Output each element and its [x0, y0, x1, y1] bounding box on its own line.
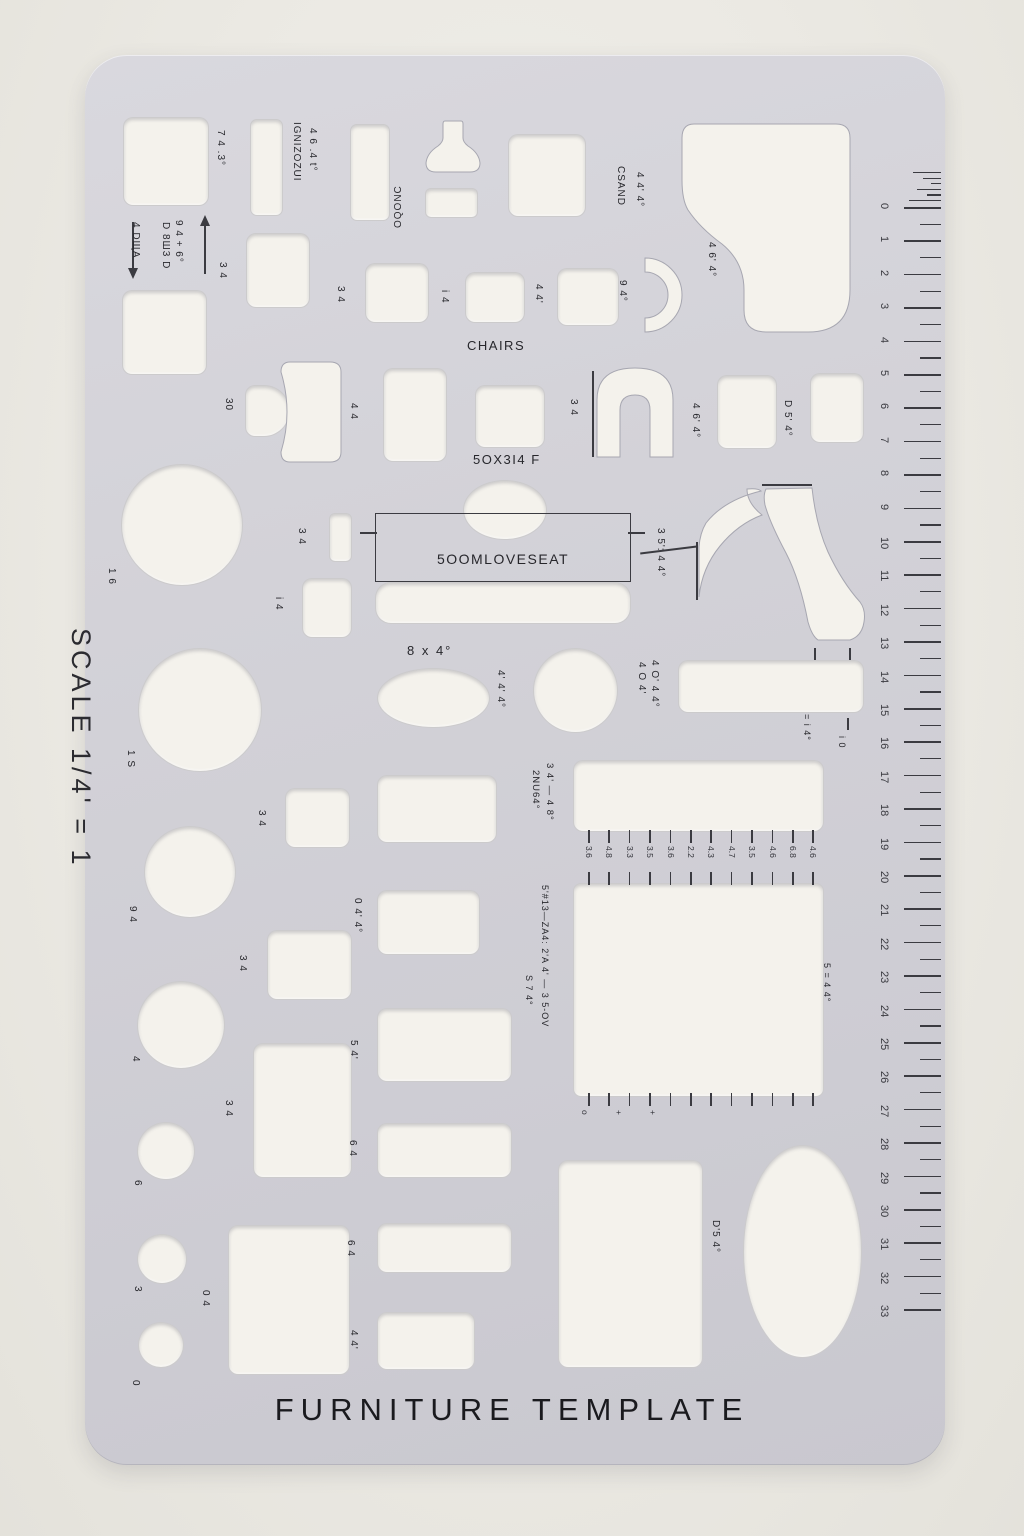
- oval-dim-label: 8 x 4°: [407, 643, 452, 658]
- ruler-major-tick: [904, 1109, 941, 1111]
- bed-tick-number: 3.3: [625, 846, 635, 858]
- cutout-round-table: [138, 648, 262, 772]
- ruler-number: 6: [878, 403, 890, 409]
- ruler-number: 5: [878, 370, 890, 376]
- up-arrow-line: [204, 226, 206, 274]
- arc-dimension-line: [762, 484, 812, 486]
- bed-tick-number: 3.6: [666, 846, 676, 858]
- bed-tick-number: o: [580, 1110, 590, 1115]
- ruler-major-tick: [904, 641, 941, 643]
- ruler-number: 26: [878, 1071, 890, 1083]
- bed-tick: [710, 830, 712, 843]
- cutout-round-table: [144, 826, 236, 918]
- cutout-small-rect: [329, 513, 352, 562]
- bed-tick-number: 4.8: [604, 846, 614, 858]
- loveseat-outline: [375, 513, 631, 582]
- ruler-minor-tick: [920, 257, 941, 258]
- dim-label: 3 5': 4 4°: [655, 528, 666, 577]
- dim-label: 3: [132, 1286, 143, 1293]
- cutout-queen-bed: [573, 760, 824, 832]
- ruler-number: 8: [878, 470, 890, 476]
- cutout-square-table: [475, 385, 545, 448]
- bed-tick: [751, 1093, 753, 1106]
- ruler-minor-tick: [920, 591, 941, 592]
- dim-label: D 5' 4°: [782, 400, 793, 437]
- ruler-major-tick: [904, 374, 941, 376]
- cutout-arc-chair: [600, 250, 700, 340]
- bed-tick: [670, 830, 672, 843]
- ruler-number: 16: [878, 737, 890, 749]
- ruler-minor-tick: [920, 1259, 941, 1260]
- dim-label: 3 4: [568, 399, 579, 416]
- ruler-number: 12: [878, 604, 890, 616]
- dim-label: = i 4°: [802, 714, 812, 741]
- ruler-cal-tick: [913, 172, 941, 173]
- ruler-major-tick: [904, 1176, 941, 1178]
- dim-label: 4 4: [348, 403, 359, 420]
- bed-tick: [670, 1093, 672, 1106]
- arrow-label: D 8Ш3 D: [160, 222, 171, 269]
- dim-label: 4 O 4': [636, 662, 647, 694]
- dim-label: 30: [223, 398, 234, 411]
- cutout-square-table: [267, 930, 352, 1000]
- bed-tick: [629, 1093, 631, 1106]
- ruler-minor-tick: [920, 825, 941, 826]
- cutout-dresser: [253, 1043, 352, 1178]
- arrow-label: 4 DЩA: [130, 222, 141, 259]
- ruler-major-tick: [904, 274, 941, 276]
- bed-tick-number: +: [614, 1110, 624, 1115]
- ruler-number: 9: [878, 504, 890, 510]
- bed-tick-number: 2.2: [686, 846, 696, 858]
- ruler-minor-tick: [920, 758, 941, 759]
- cutout-arch-chair: [590, 365, 680, 463]
- ruler-number: 32: [878, 1272, 890, 1284]
- cutout-sofa-table: [678, 660, 864, 713]
- ruler-major-tick: [904, 1075, 941, 1077]
- dim-label: 4 4' 4°: [634, 172, 645, 207]
- bed-tick: [649, 830, 651, 843]
- bed-tick-number: 6.8: [788, 846, 798, 858]
- ruler-number: 14: [878, 671, 890, 683]
- bed-tick: [772, 830, 774, 843]
- bed-tick: [812, 1093, 814, 1106]
- ruler-number: 4: [878, 337, 890, 343]
- cutout-sectional-arcs: [690, 480, 870, 645]
- cutout-small-rect: [425, 188, 478, 218]
- ruler-major-tick: [904, 808, 941, 810]
- cutout-sofa: [377, 775, 497, 843]
- bed-tick: [690, 830, 692, 843]
- ruler-number: 19: [878, 838, 890, 850]
- king-bed-label: 5 = 4 4°: [822, 963, 832, 1002]
- dim-label: 3 4: [237, 955, 248, 972]
- ruler-number: 11: [878, 570, 890, 581]
- bed-tick-number: 3.5: [645, 846, 655, 858]
- cutout-round-table: [138, 1322, 184, 1368]
- dim-label: 4' 4' 4°: [495, 670, 506, 708]
- ruler-major-tick: [904, 1142, 941, 1144]
- ruler-number: 3: [878, 303, 890, 309]
- dim-label: 9 4: [127, 906, 138, 923]
- ruler-cal-tick: [909, 200, 941, 201]
- dim-label: 4 4': [533, 284, 544, 304]
- cutout-grand-piano: [676, 118, 856, 338]
- bed-tick: [792, 872, 794, 885]
- ruler-major-tick: [904, 1209, 941, 1211]
- cutout-bed-large: [228, 1225, 350, 1375]
- cutout-dresser: [377, 1312, 475, 1370]
- ruler-minor-tick: [920, 1226, 941, 1227]
- ruler-major-tick: [904, 341, 941, 343]
- ruler-minor-tick: [920, 558, 941, 559]
- ruler-major-tick: [904, 508, 941, 510]
- ruler-major-tick: [904, 307, 941, 309]
- bed-tick: [670, 872, 672, 885]
- ruler-number: 7: [878, 437, 890, 443]
- ruler-major-tick: [904, 1276, 941, 1278]
- ruler-major-tick: [904, 474, 941, 476]
- queen-bed-label: 2NU64°: [530, 770, 541, 809]
- ruler-minor-tick: [920, 1126, 941, 1127]
- grand-piano-label: CSAND: [615, 166, 626, 206]
- cutout-lamp-shape: [424, 118, 482, 176]
- dim-label: i 4: [273, 597, 284, 611]
- dimension-tick: [628, 532, 645, 534]
- ruler-number: 13: [878, 637, 890, 649]
- bed-tick: [710, 872, 712, 885]
- dim-label: 4 6' 4°: [690, 403, 701, 438]
- bed-tick: [731, 872, 733, 885]
- king-bed-label: S 7 4°: [524, 975, 534, 1006]
- cutout-small-rect: [302, 578, 352, 638]
- cutout-loveseat: [375, 582, 631, 624]
- bed-tick: [608, 872, 610, 885]
- bed-tick: [649, 1093, 651, 1106]
- bed-tick: [710, 1093, 712, 1106]
- dim-label: 6 4: [345, 1240, 356, 1257]
- ruler-major-tick: [904, 708, 941, 710]
- dim-label: 3 4: [335, 286, 346, 303]
- ruler-number: 17: [878, 771, 890, 783]
- dimension-tick: [847, 718, 849, 730]
- cutout-dresser: [377, 1008, 512, 1082]
- ruler-major-tick: [904, 441, 941, 443]
- ruler-cal-tick: [927, 194, 941, 195]
- ruler-major-tick: [904, 240, 941, 242]
- ruler-minor-tick: [920, 625, 941, 626]
- cutout-rect-chair: [810, 373, 864, 443]
- bed-tick-number: 3.6: [584, 846, 594, 858]
- cutout-narrow-rect: [350, 124, 390, 221]
- ruler-major-tick: [904, 1309, 941, 1311]
- dim-label: 0 4: [200, 1290, 211, 1307]
- loveseat-label: 5OOMLOVESEAT: [437, 551, 569, 567]
- ruler-minor-tick: [920, 324, 941, 325]
- cutout-square-table: [123, 117, 209, 206]
- ruler-cal-tick: [923, 178, 941, 179]
- cutout-round-table: [137, 981, 225, 1069]
- dim-label: 4: [130, 1056, 141, 1063]
- bed-tick: [751, 830, 753, 843]
- dimension-tick: [360, 532, 377, 534]
- bed-tick-number: +: [648, 1110, 658, 1115]
- bed-tick: [731, 830, 733, 843]
- ruler-minor-tick: [920, 658, 941, 659]
- bed-tick: [608, 1093, 610, 1106]
- ruler-major-tick: [904, 407, 941, 409]
- bed-tick: [649, 872, 651, 885]
- ruler-major-tick: [904, 675, 941, 677]
- dim-label: 0 4' 4°: [352, 898, 363, 933]
- dim-label: 0: [130, 1380, 141, 1387]
- dim-label: 7 4 .3°: [215, 130, 226, 166]
- ruler-cal-tick: [931, 183, 941, 184]
- bed-tick: [792, 1093, 794, 1106]
- loveseat-dim-label: 5OX3I4 F: [473, 452, 541, 467]
- bed-tick: [812, 872, 814, 885]
- ruler-major-tick: [904, 908, 941, 910]
- cutout-rect-chair: [717, 375, 777, 449]
- ruler-minor-tick: [920, 524, 941, 525]
- cutout-square-chair: [508, 134, 586, 217]
- ruler-number: 18: [878, 804, 890, 816]
- ruler-cal-tick: [917, 189, 941, 190]
- dim-label: OQONC: [393, 185, 404, 228]
- arc-dimension-line: [696, 542, 698, 600]
- cutout-square-chair: [365, 263, 429, 323]
- dim-label: 4 O' 4 4°: [649, 660, 660, 708]
- bed-tick-number: 3.5: [747, 846, 757, 858]
- cutout-round-table: [137, 1122, 195, 1180]
- ruler-number: 10: [878, 537, 890, 549]
- scale-label: SCALE 1/4' = 1: [65, 628, 96, 869]
- cutout-round-table: [137, 1234, 187, 1284]
- ruler-number: 30: [878, 1205, 890, 1217]
- ruler-minor-tick: [920, 291, 941, 292]
- chairs-section-label: CHAIRS: [467, 338, 525, 353]
- ruler-major-tick: [904, 1042, 941, 1044]
- dim-label: 3 4: [296, 528, 307, 545]
- ruler-minor-tick: [920, 959, 941, 960]
- dim-label: 3 4: [223, 1100, 234, 1117]
- bed-tick: [690, 872, 692, 885]
- cutout-square-chair: [246, 233, 310, 308]
- dim-label: 4 6 .4 t°: [307, 128, 318, 172]
- ruler-minor-tick: [920, 1092, 941, 1093]
- ruler-major-tick: [904, 574, 941, 576]
- ruler-number: 0: [878, 203, 890, 209]
- dim-label: 1 6: [106, 568, 117, 585]
- cutout-rect-chair: [383, 368, 447, 462]
- up-arrow-head: [200, 215, 210, 226]
- cutout-round-table: [121, 464, 243, 586]
- bed-tick: [608, 830, 610, 843]
- cutout-round-table: [533, 648, 618, 733]
- dim-label: 4 4': [348, 1330, 359, 1350]
- arch-dimension-line: [592, 371, 594, 457]
- dim-label: 4 6' 4°: [706, 242, 717, 277]
- ruler-major-tick: [904, 942, 941, 944]
- dim-label: i 4: [439, 290, 450, 304]
- ruler-minor-tick: [920, 858, 941, 859]
- bed-tick: [772, 1093, 774, 1106]
- bed-tick: [588, 830, 590, 843]
- ruler-major-tick: [904, 207, 941, 209]
- ruler-major-tick: [904, 1242, 941, 1244]
- cutout-oval-8x4: [377, 668, 490, 728]
- ruler-minor-tick: [920, 391, 941, 392]
- ruler-number: 1: [878, 236, 890, 242]
- ruler-number: 28: [878, 1138, 890, 1150]
- ruler-minor-tick: [920, 1192, 941, 1193]
- ruler-major-tick: [904, 842, 941, 844]
- ruler-major-tick: [904, 1009, 941, 1011]
- ruler-number: 15: [878, 704, 890, 716]
- ruler-minor-tick: [920, 458, 941, 459]
- cutout-king-bed: [573, 883, 824, 1097]
- bed-tick: [772, 872, 774, 885]
- ruler-number: 25: [878, 1038, 890, 1050]
- bed-tick-number: 4.7: [727, 846, 737, 858]
- ruler-minor-tick: [920, 224, 941, 225]
- dimension-tick: [849, 648, 851, 660]
- ruler-minor-tick: [920, 1159, 941, 1160]
- cutout-sofa: [377, 890, 480, 955]
- photo-stage: 7 4 .3° IGNIZOZUI 4 6 .4 t° OQONC 4 DЩA …: [0, 0, 1024, 1536]
- dim-label: 1 S: [125, 750, 136, 768]
- bed-tick: [629, 830, 631, 843]
- cutout-dresser: [377, 1223, 512, 1273]
- ruler-minor-tick: [920, 424, 941, 425]
- ruler-number: 27: [878, 1105, 890, 1117]
- dim-label: D'5 4°: [710, 1220, 721, 1253]
- ruler-major-tick: [904, 541, 941, 543]
- down-arrow-head: [128, 268, 138, 279]
- ruler-minor-tick: [920, 992, 941, 993]
- dimension-tick: [814, 648, 816, 660]
- ruler-minor-tick: [920, 925, 941, 926]
- ruler-minor-tick: [920, 1025, 941, 1026]
- cutout-square-table: [285, 788, 350, 848]
- cutout-square-chair: [122, 290, 207, 375]
- cutout-bed-large: [558, 1160, 703, 1368]
- bed-tick: [588, 872, 590, 885]
- cutout-dresser: [377, 1123, 512, 1178]
- dim-label: 6 4: [347, 1140, 358, 1157]
- queen-bed-label: 3 4' — 4 8°: [544, 763, 555, 821]
- bed-tick: [690, 1093, 692, 1106]
- ruler-number: 31: [878, 1238, 890, 1250]
- dim-label: 6: [132, 1180, 143, 1187]
- bed-tick: [588, 1093, 590, 1106]
- ruler-number: 33: [878, 1305, 890, 1317]
- bed-tick-number: 4.3: [706, 846, 716, 858]
- ruler-major-tick: [904, 608, 941, 610]
- bed-tick: [812, 830, 814, 843]
- cutout-bow-front-chair: [278, 360, 344, 464]
- cutout-large-oval: [743, 1145, 862, 1358]
- ruler-number: 20: [878, 871, 890, 883]
- ruler-minor-tick: [920, 892, 941, 893]
- bed-tick: [731, 1093, 733, 1106]
- ruler-number: 29: [878, 1172, 890, 1184]
- ruler-major-tick: [904, 975, 941, 977]
- ruler-number: 21: [878, 904, 890, 916]
- bed-tick: [629, 872, 631, 885]
- ruler-major-tick: [904, 741, 941, 743]
- template-title: FURNITURE TEMPLATE: [275, 1392, 750, 1428]
- dim-label: IGNIZOZUI: [291, 122, 302, 182]
- ruler-minor-tick: [920, 1059, 941, 1060]
- ruler-major-tick: [904, 775, 941, 777]
- dim-label: 3 4: [217, 262, 228, 279]
- arrow-label: 9 4 + 6°: [173, 220, 184, 263]
- ruler-minor-tick: [920, 491, 941, 492]
- ruler-number: 24: [878, 1005, 890, 1017]
- dim-label: 9 4°: [617, 280, 628, 302]
- ruler-minor-tick: [920, 725, 941, 726]
- bed-tick: [751, 872, 753, 885]
- ruler-major-tick: [904, 875, 941, 877]
- ruler-number: 2: [878, 270, 890, 276]
- dim-label: i 0: [837, 736, 847, 749]
- ruler-minor-tick: [920, 1293, 941, 1294]
- ruler-number: 23: [878, 971, 890, 983]
- dim-label: 3 4: [256, 810, 267, 827]
- ruler-minor-tick: [920, 691, 941, 692]
- ruler-minor-tick: [920, 792, 941, 793]
- bed-tick: [792, 830, 794, 843]
- bed-tick-number: 4.6: [808, 846, 818, 858]
- ruler-number: 22: [878, 938, 890, 950]
- king-bed-label: 5'#13—ZA4: 2'A 4' — 3 5-OV: [540, 885, 550, 1027]
- ruler-minor-tick: [920, 357, 941, 358]
- cutout-narrow-rect: [250, 119, 283, 216]
- dim-label: 5 4': [348, 1040, 359, 1060]
- cutout-square-chair: [465, 272, 525, 323]
- bed-tick-number: 4.6: [768, 846, 778, 858]
